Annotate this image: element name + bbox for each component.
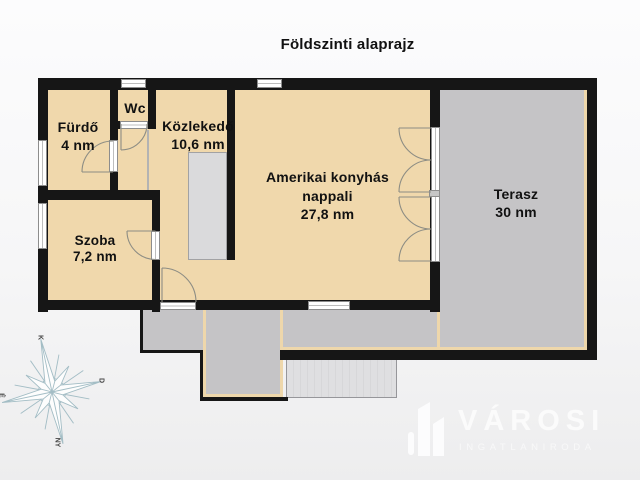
door-arc-french-1 (399, 128, 431, 160)
room-label-corridor: Közlekedő 10,6 nm (147, 118, 249, 153)
logo-brand-text: VÁROSI (458, 405, 628, 438)
room-label-bathroom: Fürdő 4 nm (33, 119, 123, 154)
compass-label-west: NY (54, 437, 61, 449)
room-label-room: Szoba 7,2 nm (50, 233, 140, 265)
compass-label-south: D (98, 375, 105, 387)
floor-plan-page: { "title": "Földszinti alaprajz", "rooms… (0, 0, 640, 480)
compass-rose-icon (0, 322, 128, 467)
varosi-building-icon (404, 399, 454, 459)
compass-label-east: K (37, 332, 44, 344)
room-label-wc: Wc (112, 100, 158, 118)
room-label-terrace: Terasz 30 nm (466, 186, 566, 221)
door-arc-wc (121, 124, 147, 150)
room-label-livingroom: Amerikai konyhás nappali 27,8 nm (247, 168, 408, 224)
logo-tagline-text: INGATLANIRODA (459, 442, 629, 453)
door-arc-exit (162, 268, 196, 302)
compass-label-north: É (0, 390, 5, 402)
door-arc-french-4 (399, 229, 431, 261)
